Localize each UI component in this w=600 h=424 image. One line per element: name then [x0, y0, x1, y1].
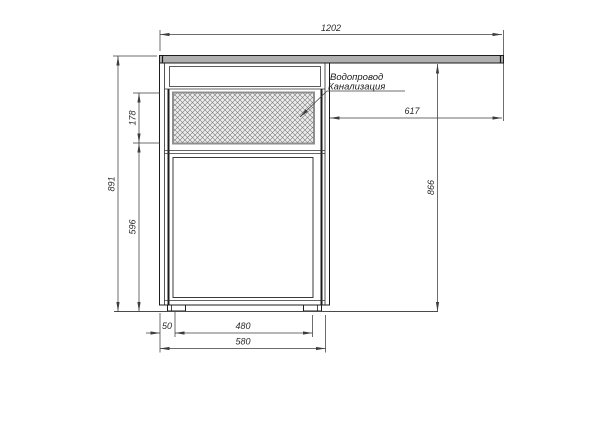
dim-label-top-right-width: 617	[404, 106, 420, 116]
dim-label-cabinet-width: 580	[235, 337, 250, 347]
dim-label-lower-height: 596	[128, 219, 138, 234]
foot-right	[304, 305, 322, 311]
foot-left	[168, 305, 186, 311]
door-panel	[173, 158, 313, 298]
countertop-slab	[160, 56, 504, 64]
dim-label-total-height: 891	[107, 176, 117, 191]
dim-label-foot-offset: 50	[162, 321, 172, 331]
vanity-installation-drawing: 1202 891 178 596 866 617 50 480 580	[0, 0, 600, 424]
utility-access-hatch-area	[173, 93, 314, 144]
annotation-line2: Канализация	[328, 82, 385, 93]
countertop	[160, 56, 504, 64]
dim-label-feet-span: 480	[235, 321, 250, 331]
dim-label-top-width: 1202	[321, 23, 341, 33]
cabinet-body	[160, 63, 330, 305]
dim-label-right-height: 866	[426, 180, 436, 195]
technical-drawing-canvas: 1202 891 178 596 866 617 50 480 580	[0, 0, 600, 424]
dimension-total-height	[113, 56, 157, 312]
cabinet-feet	[168, 305, 322, 311]
top-rail-panel	[170, 67, 321, 87]
dim-label-hatch-height: 178	[128, 110, 138, 125]
